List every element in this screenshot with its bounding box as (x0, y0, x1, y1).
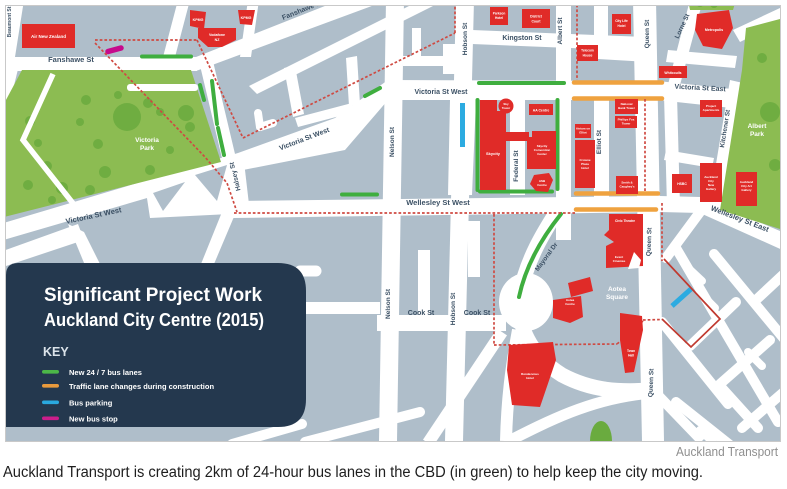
svg-text:Parkson: Parkson (493, 12, 506, 16)
svg-text:Skycity: Skycity (486, 151, 501, 156)
svg-text:Center: Center (537, 152, 547, 156)
svg-text:Hotel: Hotel (581, 166, 589, 170)
svg-text:Auckland Transport is creating: Auckland Transport is creating 2km of 24… (3, 464, 703, 481)
svg-text:Tower: Tower (502, 106, 511, 110)
svg-text:Kingston St: Kingston St (502, 35, 542, 42)
svg-text:Park: Park (750, 131, 764, 138)
svg-text:Nelson St: Nelson St (385, 288, 392, 319)
svg-text:Park: Park (140, 145, 154, 152)
svg-text:Queen St: Queen St (646, 227, 654, 257)
svg-text:Square: Square (606, 294, 628, 301)
svg-text:Whitcoulls: Whitcoulls (664, 71, 681, 75)
svg-text:Federal St: Federal St (513, 149, 520, 181)
svg-text:Town: Town (627, 349, 635, 353)
svg-text:Vodafone: Vodafone (209, 33, 225, 37)
svg-text:Hotel: Hotel (526, 376, 534, 380)
svg-text:NZ: NZ (215, 38, 221, 42)
svg-text:New 24 / 7 bus lanes: New 24 / 7 bus lanes (69, 368, 142, 377)
svg-text:Hobson St: Hobson St (450, 292, 457, 325)
svg-text:Hall: Hall (628, 354, 634, 358)
svg-text:KPMG: KPMG (241, 16, 252, 20)
svg-text:KPMG: KPMG (193, 18, 204, 22)
svg-text:Nelson St: Nelson St (389, 126, 396, 157)
svg-text:Bank Tower: Bank Tower (618, 106, 636, 110)
svg-text:Bus parking: Bus parking (69, 399, 113, 408)
svg-text:Gallery: Gallery (706, 187, 717, 191)
svg-text:Gallery: Gallery (741, 188, 752, 192)
svg-text:Queen St: Queen St (648, 368, 656, 398)
svg-text:Beaumont St: Beaumont St (7, 6, 13, 37)
svg-text:Wellesley St West: Wellesley St West (406, 198, 470, 207)
svg-text:Centre: Centre (565, 302, 575, 306)
svg-text:Queen St: Queen St (644, 19, 651, 48)
svg-text:Victoria St West: Victoria St West (414, 89, 468, 96)
svg-text:Telecom: Telecom (581, 49, 594, 53)
svg-text:Cook St: Cook St (408, 310, 435, 317)
svg-text:Albert St: Albert St (557, 17, 564, 45)
svg-text:Air New Zealand: Air New Zealand (31, 34, 66, 39)
svg-text:House: House (583, 54, 593, 58)
svg-text:Civic Theatre: Civic Theatre (615, 219, 635, 223)
svg-text:City Life: City Life (615, 19, 628, 23)
svg-text:Court: Court (531, 20, 541, 24)
svg-text:Hobson St: Hobson St (462, 22, 469, 55)
svg-text:Significant Project Work: Significant Project Work (44, 284, 262, 306)
svg-text:Albert: Albert (748, 123, 768, 130)
svg-text:District: District (530, 15, 543, 19)
svg-text:New bus stop: New bus stop (69, 415, 118, 424)
svg-text:Hotel: Hotel (495, 16, 503, 20)
svg-text:Hotel: Hotel (618, 24, 626, 28)
svg-text:Cinemas: Cinemas (613, 259, 626, 263)
svg-text:Aotea: Aotea (608, 286, 626, 293)
svg-text:Caughey's: Caughey's (619, 185, 634, 189)
svg-text:KEY: KEY (43, 345, 69, 359)
svg-text:Tower: Tower (622, 122, 631, 126)
svg-text:Traffic lane changes during co: Traffic lane changes during construction (69, 382, 214, 391)
svg-text:Elliot: Elliot (579, 131, 586, 135)
svg-text:Apartments: Apartments (703, 108, 720, 112)
svg-text:Elliot St: Elliot St (596, 129, 603, 154)
svg-text:Fanshawe St: Fanshawe St (48, 55, 94, 64)
svg-text:Auckland Transport: Auckland Transport (676, 444, 778, 459)
svg-text:HSBC: HSBC (677, 182, 687, 186)
svg-text:AA Centre: AA Centre (533, 109, 550, 113)
svg-text:Centre: Centre (537, 183, 547, 187)
svg-text:Metropolis: Metropolis (705, 28, 723, 32)
svg-text:Cook St: Cook St (464, 310, 491, 317)
svg-text:Auckland City Centre (2015): Auckland City Centre (2015) (44, 310, 264, 330)
svg-text:Victoria: Victoria (135, 137, 159, 144)
